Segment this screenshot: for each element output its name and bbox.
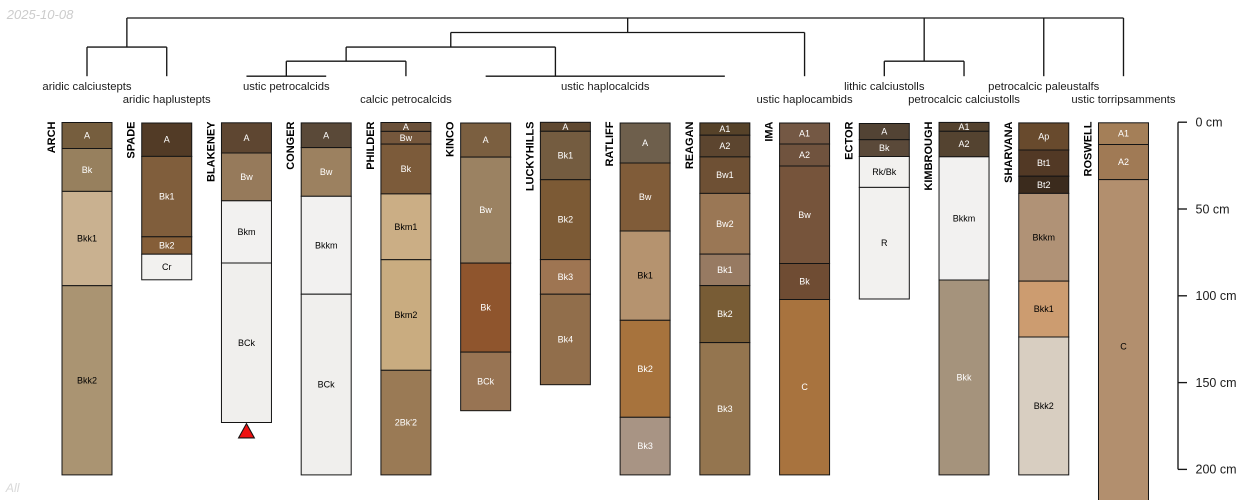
svg-text:Cr: Cr	[162, 262, 172, 272]
svg-text:Bw: Bw	[240, 172, 253, 182]
svg-text:Bw: Bw	[639, 192, 652, 202]
svg-text:SPADE: SPADE	[126, 122, 138, 159]
svg-text:KIMBROUGH: KIMBROUGH	[923, 121, 935, 190]
svg-text:Bk2: Bk2	[558, 215, 574, 225]
svg-text:Bk2: Bk2	[159, 241, 175, 251]
svg-text:Bkkm: Bkkm	[315, 240, 338, 250]
svg-text:Bkm1: Bkm1	[394, 222, 417, 232]
svg-text:Bt1: Bt1	[1037, 158, 1051, 168]
svg-text:Bkk1: Bkk1	[77, 234, 97, 244]
svg-text:50 cm: 50 cm	[1196, 202, 1230, 216]
svg-text:aridic haplustepts: aridic haplustepts	[123, 94, 211, 106]
svg-text:lithic calciustolls: lithic calciustolls	[844, 81, 925, 93]
svg-text:A: A	[164, 135, 170, 145]
svg-text:Bk: Bk	[480, 303, 491, 313]
svg-text:A2: A2	[719, 141, 730, 151]
svg-text:Bkm: Bkm	[237, 227, 255, 237]
svg-text:Bw1: Bw1	[716, 170, 734, 180]
svg-text:Bw: Bw	[400, 133, 413, 143]
svg-text:Bk1: Bk1	[159, 192, 175, 202]
svg-text:ustic petrocalcids: ustic petrocalcids	[243, 81, 330, 93]
svg-text:A: A	[881, 127, 887, 137]
svg-text:Bw2: Bw2	[716, 219, 734, 229]
svg-text:Bkk1: Bkk1	[1034, 304, 1054, 314]
svg-text:Bk4: Bk4	[558, 334, 574, 344]
svg-text:0 cm: 0 cm	[1196, 116, 1223, 130]
svg-text:100 cm: 100 cm	[1196, 289, 1237, 303]
svg-text:A1: A1	[959, 122, 970, 132]
svg-text:CONGER: CONGER	[285, 121, 297, 169]
svg-text:Bk1: Bk1	[637, 271, 653, 281]
svg-text:ARCH: ARCH	[46, 121, 58, 153]
svg-text:Bw: Bw	[320, 167, 333, 177]
svg-text:A: A	[403, 122, 409, 132]
svg-text:Bk1: Bk1	[558, 151, 574, 161]
svg-text:C: C	[801, 382, 808, 392]
svg-text:Bkm2: Bkm2	[394, 310, 417, 320]
svg-text:Bw: Bw	[798, 210, 811, 220]
svg-text:Ap: Ap	[1038, 131, 1049, 141]
svg-text:A2: A2	[1118, 157, 1129, 167]
svg-text:Bk: Bk	[799, 277, 810, 287]
svg-text:LUCKYHILLS: LUCKYHILLS	[524, 122, 536, 192]
svg-text:Bk3: Bk3	[637, 441, 653, 451]
svg-text:ROSWELL: ROSWELL	[1082, 121, 1094, 176]
svg-text:RATLIFF: RATLIFF	[604, 121, 616, 166]
svg-text:2Bk'2: 2Bk'2	[395, 418, 417, 428]
svg-text:Bkkm: Bkkm	[953, 213, 976, 223]
svg-text:KINCO: KINCO	[445, 121, 457, 157]
svg-text:Bkk2: Bkk2	[1034, 401, 1054, 411]
svg-text:2025-10-08: 2025-10-08	[6, 7, 74, 22]
svg-text:petrocalcic calciustolls: petrocalcic calciustolls	[908, 94, 1020, 106]
svg-text:Bk: Bk	[879, 143, 890, 153]
svg-text:aridic calciustepts: aridic calciustepts	[42, 81, 132, 93]
svg-text:A: A	[243, 133, 249, 143]
svg-text:A2: A2	[799, 150, 810, 160]
svg-text:All: All	[5, 481, 21, 495]
svg-text:ustic torripsamments: ustic torripsamments	[1071, 94, 1176, 106]
svg-text:A1: A1	[1118, 129, 1129, 139]
svg-text:ustic haplocalcids: ustic haplocalcids	[561, 81, 650, 93]
svg-text:A: A	[642, 138, 648, 148]
svg-text:petrocalcic paleustalfs: petrocalcic paleustalfs	[988, 81, 1099, 93]
svg-text:Bk2: Bk2	[717, 309, 733, 319]
svg-text:Bk3: Bk3	[717, 404, 733, 414]
svg-text:200 cm: 200 cm	[1196, 463, 1237, 477]
svg-text:A: A	[483, 135, 489, 145]
svg-text:A2: A2	[959, 139, 970, 149]
svg-text:Bk: Bk	[82, 165, 93, 175]
svg-text:SHARVANA: SHARVANA	[1003, 121, 1015, 182]
svg-text:Bkkm: Bkkm	[1033, 232, 1056, 242]
svg-text:Bkk2: Bkk2	[77, 375, 97, 385]
svg-text:ustic haplocambids: ustic haplocambids	[757, 94, 853, 106]
svg-text:Bk1: Bk1	[717, 265, 733, 275]
svg-text:Bk2: Bk2	[637, 364, 653, 374]
svg-text:A: A	[323, 130, 329, 140]
svg-text:C: C	[1120, 341, 1127, 351]
svg-text:150 cm: 150 cm	[1196, 376, 1237, 390]
svg-text:ECTOR: ECTOR	[843, 121, 855, 159]
svg-text:BCk: BCk	[238, 338, 256, 348]
svg-text:A1: A1	[719, 124, 730, 134]
svg-text:Rk/Bk: Rk/Bk	[872, 167, 897, 177]
svg-text:Bk: Bk	[401, 164, 412, 174]
svg-text:BLAKENEY: BLAKENEY	[205, 121, 217, 182]
svg-text:A: A	[84, 131, 90, 141]
svg-text:Bw: Bw	[479, 205, 492, 215]
svg-text:PHILDER: PHILDER	[365, 121, 377, 169]
svg-text:Bt2: Bt2	[1037, 180, 1051, 190]
svg-text:R: R	[881, 238, 888, 248]
svg-text:REAGAN: REAGAN	[684, 121, 696, 169]
svg-text:Bkk: Bkk	[957, 372, 973, 382]
svg-text:A: A	[562, 122, 568, 132]
svg-text:IMA: IMA	[764, 121, 776, 141]
svg-text:BCk: BCk	[318, 380, 336, 390]
svg-text:calcic petrocalcids: calcic petrocalcids	[360, 94, 452, 106]
svg-text:BCk: BCk	[477, 376, 495, 386]
svg-text:Bk3: Bk3	[558, 272, 574, 282]
svg-text:A1: A1	[799, 129, 810, 139]
